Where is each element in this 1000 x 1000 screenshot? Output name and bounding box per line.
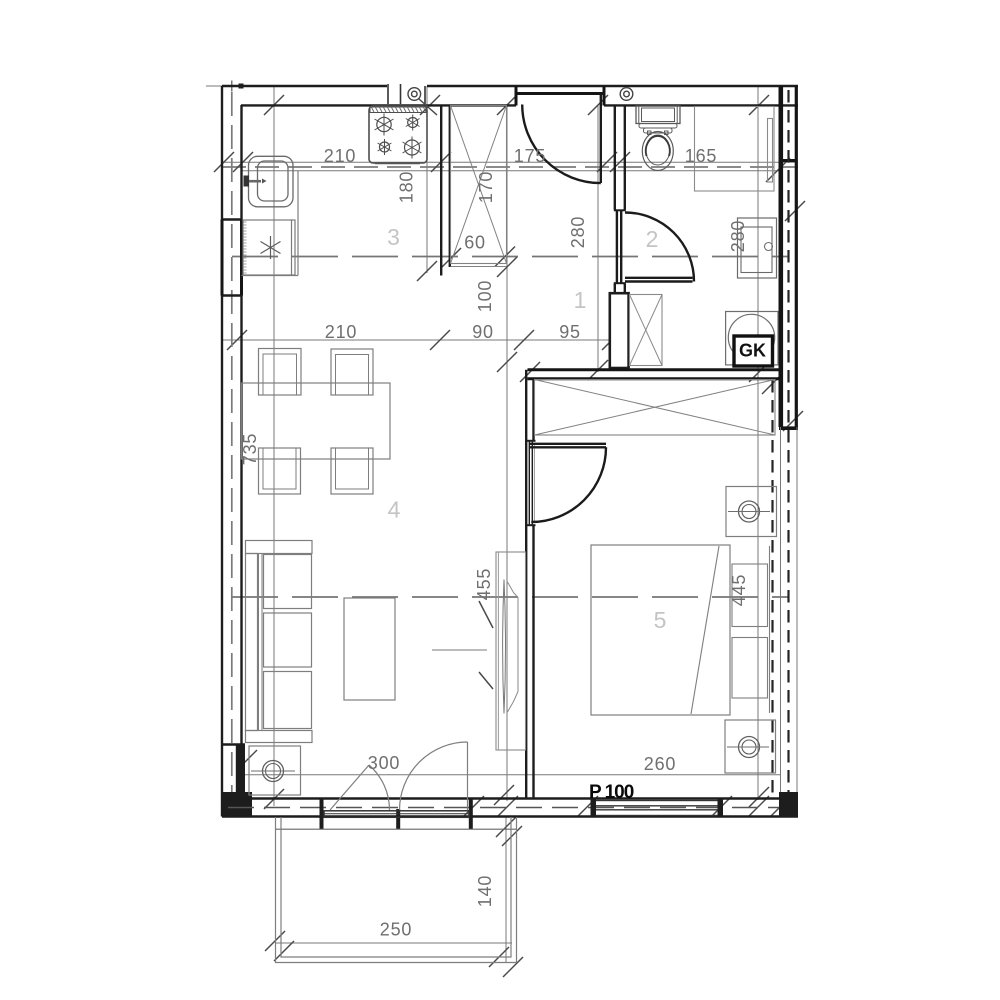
svg-text:90: 90 — [472, 322, 494, 342]
svg-text:300: 300 — [368, 753, 400, 773]
svg-text:180: 180 — [397, 171, 417, 203]
svg-text:100: 100 — [475, 280, 495, 312]
svg-text:95: 95 — [559, 322, 581, 342]
svg-text:5: 5 — [654, 607, 667, 633]
svg-text:165: 165 — [685, 146, 717, 166]
svg-text:2: 2 — [646, 226, 659, 252]
svg-text:4: 4 — [388, 497, 401, 523]
svg-text:1: 1 — [574, 287, 587, 313]
svg-text:60: 60 — [464, 233, 486, 253]
svg-text:P 100: P 100 — [589, 782, 634, 803]
svg-text:210: 210 — [324, 146, 356, 166]
svg-text:280: 280 — [568, 216, 588, 248]
svg-text:260: 260 — [644, 754, 676, 774]
svg-text:280: 280 — [728, 220, 748, 252]
svg-text:140: 140 — [475, 875, 495, 907]
svg-text:170: 170 — [476, 171, 496, 203]
svg-text:455: 455 — [474, 568, 494, 600]
svg-text:GK: GK — [739, 341, 766, 361]
svg-text:735: 735 — [240, 433, 260, 465]
svg-text:210: 210 — [325, 322, 357, 342]
svg-text:3: 3 — [387, 224, 400, 250]
svg-text:250: 250 — [380, 920, 412, 940]
svg-text:175: 175 — [514, 146, 546, 166]
svg-text:445: 445 — [729, 574, 749, 606]
